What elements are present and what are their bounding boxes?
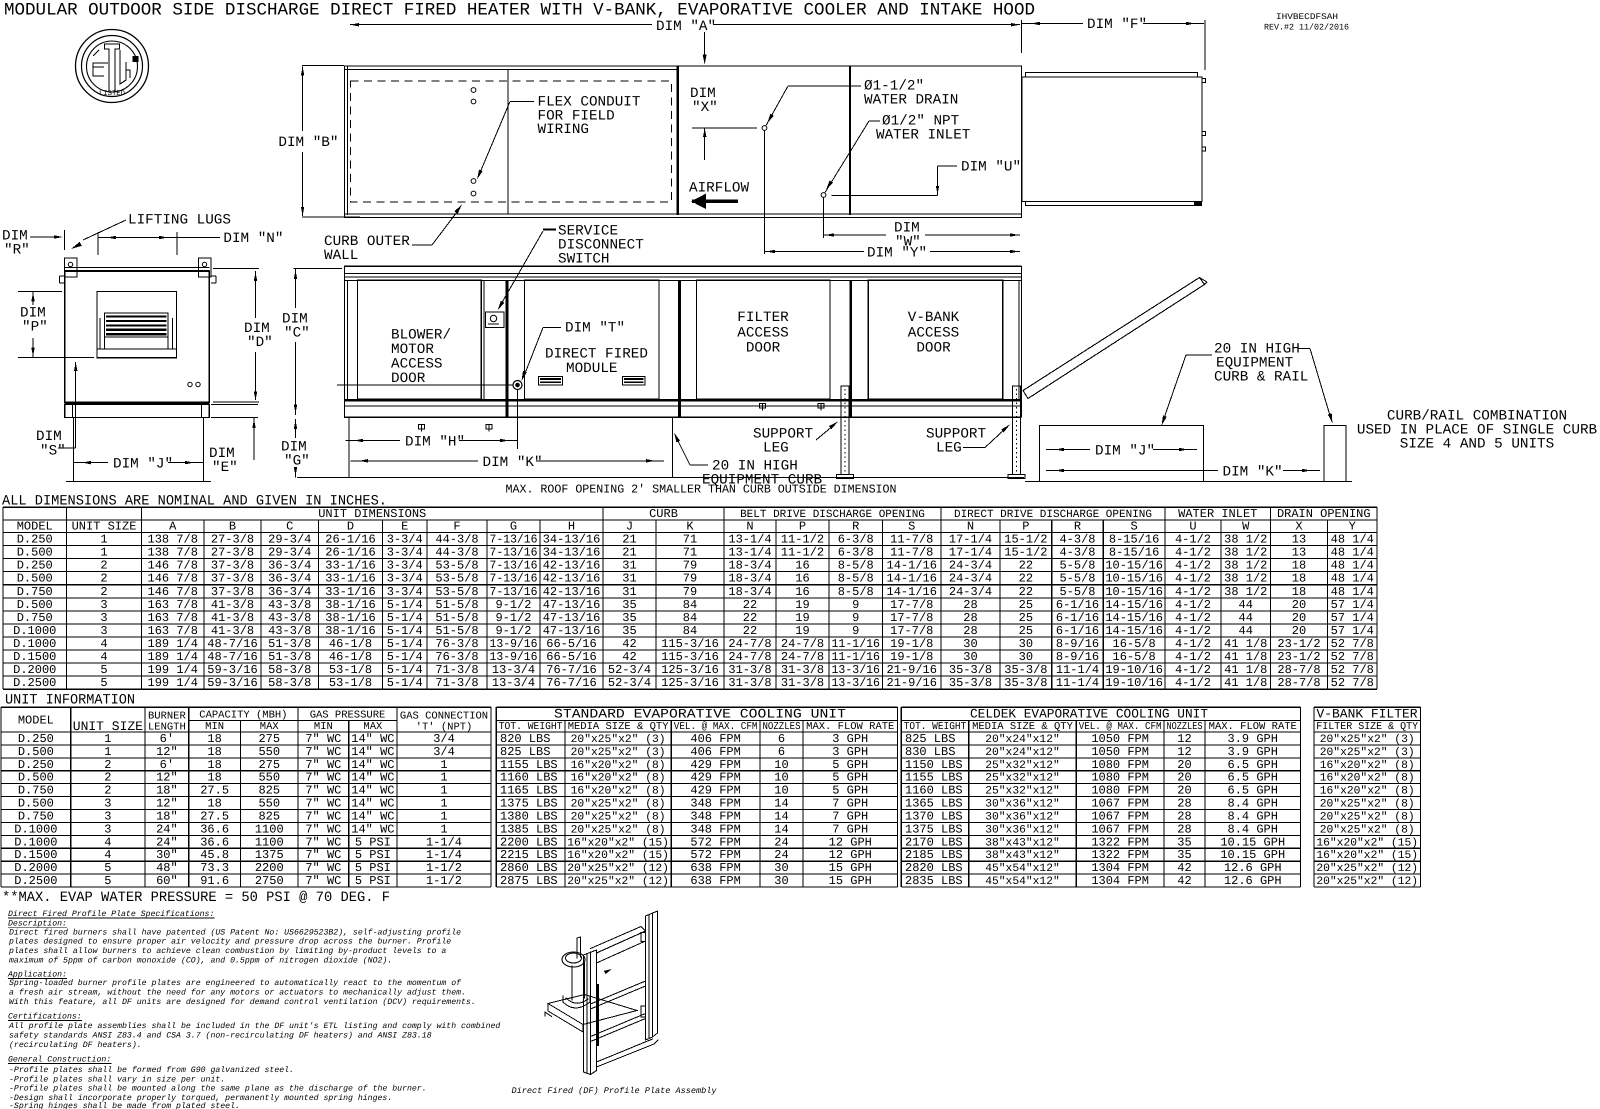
svg-text:1-1/2: 1-1/2 (426, 874, 462, 888)
svg-text:48 1/4: 48 1/4 (1331, 533, 1374, 547)
svg-text:71-3/8: 71-3/8 (435, 676, 478, 690)
svg-text:J: J (626, 519, 633, 533)
svg-text:**MAX. EVAP WATER PRESSURE = 5: **MAX. EVAP WATER PRESSURE = 50 PSI @ 70… (2, 890, 390, 906)
svg-text:7" WC: 7" WC (305, 809, 341, 823)
svg-text:20"x24"x12": 20"x24"x12" (985, 746, 1060, 759)
svg-text:4: 4 (100, 637, 107, 651)
svg-text:27.5: 27.5 (200, 784, 229, 798)
svg-text:57 1/4: 57 1/4 (1331, 611, 1374, 625)
svg-text:29-3/4: 29-3/4 (268, 546, 311, 560)
svg-text:53-1/8: 53-1/8 (329, 663, 372, 677)
svg-text:1: 1 (440, 771, 447, 785)
svg-text:WATER DRAIN: WATER DRAIN (864, 93, 958, 109)
svg-text:53-1/8: 53-1/8 (329, 676, 372, 690)
svg-text:16"x20"x2" (8): 16"x20"x2" (8) (571, 772, 666, 785)
svg-text:48 1/4: 48 1/4 (1331, 585, 1374, 599)
svg-text:MODEL: MODEL (18, 714, 54, 728)
svg-text:42-13/16: 42-13/16 (543, 585, 601, 599)
svg-text:WATER INLET: WATER INLET (876, 128, 971, 144)
svg-text:plates designed to ensure prop: plates designed to ensure proper air vel… (8, 938, 451, 947)
svg-text:66-5/16: 66-5/16 (546, 650, 596, 664)
svg-text:52 7/8: 52 7/8 (1331, 650, 1374, 664)
svg-text:D.1000: D.1000 (13, 624, 56, 638)
svg-text:4-1/2: 4-1/2 (1175, 663, 1211, 677)
svg-text:25: 25 (1019, 611, 1033, 625)
svg-text:27-3/8: 27-3/8 (211, 533, 254, 547)
svg-text:35: 35 (1177, 835, 1191, 849)
svg-text:MODEL: MODEL (17, 519, 53, 533)
svg-text:12 GPH: 12 GPH (829, 835, 872, 849)
svg-text:F: F (453, 519, 460, 533)
svg-text:9: 9 (852, 598, 859, 612)
svg-text:5-1/4: 5-1/4 (387, 598, 423, 612)
svg-text:7-13/16: 7-13/16 (490, 559, 538, 573)
svg-text:W: W (1242, 519, 1250, 533)
svg-text:MEDIA SIZE & QTY: MEDIA SIZE & QTY (568, 721, 670, 733)
svg-text:D.2000: D.2000 (14, 861, 57, 875)
svg-text:138 7/8: 138 7/8 (148, 533, 198, 547)
svg-text:10: 10 (774, 784, 788, 798)
svg-text:76-7/16: 76-7/16 (546, 676, 596, 690)
svg-text:10: 10 (774, 771, 788, 785)
svg-text:CURB & RAIL: CURB & RAIL (1214, 370, 1308, 386)
svg-text:E: E (401, 519, 408, 533)
svg-text:MODULAR OUTDOOR SIDE DISCHARGE: MODULAR OUTDOOR SIDE DISCHARGE DIRECT FI… (4, 2, 1035, 21)
svg-text:11-7/8: 11-7/8 (890, 533, 933, 547)
svg-text:47-13/16: 47-13/16 (543, 624, 601, 638)
svg-text:D.1500: D.1500 (14, 848, 57, 862)
svg-text:6': 6' (160, 758, 174, 772)
svg-text:26-1/16: 26-1/16 (325, 546, 375, 560)
svg-text:38"x43"x12": 38"x43"x12" (985, 849, 1060, 862)
svg-text:20"x25"x2" (3): 20"x25"x2" (3) (1320, 733, 1415, 746)
svg-text:1304 FPM: 1304 FPM (1091, 874, 1149, 888)
svg-text:D.500: D.500 (18, 797, 54, 811)
svg-text:5 PSI: 5 PSI (355, 848, 391, 862)
svg-text:6-1/16: 6-1/16 (1056, 611, 1099, 625)
svg-text:26-1/16: 26-1/16 (325, 533, 375, 547)
svg-text:71: 71 (683, 546, 697, 560)
svg-text:1155 LBS: 1155 LBS (500, 758, 558, 772)
svg-text:30"x36"x12": 30"x36"x12" (985, 798, 1060, 811)
svg-text:189 1/4: 189 1/4 (148, 637, 198, 651)
svg-text:4-3/8: 4-3/8 (1059, 546, 1095, 560)
svg-text:D.500: D.500 (17, 546, 53, 560)
svg-text:AIRFLOW: AIRFLOW (689, 181, 749, 197)
svg-text:24: 24 (774, 835, 788, 849)
svg-text:59-3/16: 59-3/16 (207, 663, 257, 677)
svg-text:31-3/8: 31-3/8 (781, 663, 824, 677)
svg-text:1: 1 (440, 784, 447, 798)
svg-text:48-7/16: 48-7/16 (207, 650, 257, 664)
svg-text:1-1/4: 1-1/4 (426, 848, 462, 862)
svg-text:17-7/8: 17-7/8 (890, 598, 933, 612)
svg-text:189 1/4: 189 1/4 (148, 650, 198, 664)
svg-text:2170 LBS: 2170 LBS (905, 835, 963, 849)
svg-text:429 FPM: 429 FPM (690, 758, 740, 772)
svg-text:3 GPH: 3 GPH (832, 732, 868, 746)
svg-text:(recirculating DF heaters).: (recirculating DF heaters). (9, 1041, 142, 1050)
svg-text:14: 14 (774, 797, 788, 811)
svg-text:IHVBECDFSAH: IHVBECDFSAH (1276, 12, 1338, 22)
svg-text:19: 19 (795, 611, 809, 625)
svg-text:9-1/2: 9-1/2 (495, 624, 531, 638)
svg-text:52 7/8: 52 7/8 (1331, 637, 1374, 651)
svg-text:27.5: 27.5 (200, 809, 229, 823)
svg-text:11-1/2: 11-1/2 (781, 533, 824, 547)
svg-text:37-3/8: 37-3/8 (211, 572, 254, 586)
svg-text:H: H (568, 519, 575, 533)
svg-text:V-BANK: V-BANK (908, 310, 960, 326)
svg-text:46-1/8: 46-1/8 (329, 650, 372, 664)
svg-text:48 1/4: 48 1/4 (1331, 559, 1374, 573)
svg-text:A: A (169, 519, 177, 533)
svg-text:7 GPH: 7 GPH (832, 797, 868, 811)
svg-text:D.1000: D.1000 (14, 835, 57, 849)
svg-text:44-3/8: 44-3/8 (435, 533, 478, 547)
svg-text:7" WC: 7" WC (305, 732, 341, 746)
svg-text:18: 18 (1292, 585, 1306, 599)
svg-text:20"x25"x2" (8): 20"x25"x2" (8) (1320, 810, 1415, 823)
svg-text:DIM "H": DIM "H" (405, 435, 465, 451)
svg-text:"X": "X" (692, 100, 718, 116)
svg-text:"G": "G" (284, 454, 310, 470)
svg-text:D.250: D.250 (18, 758, 54, 772)
svg-text:5: 5 (100, 663, 107, 677)
svg-text:45"x54"x12": 45"x54"x12" (985, 862, 1060, 875)
svg-text:2200 LBS: 2200 LBS (500, 835, 558, 849)
svg-text:7" WC: 7" WC (305, 848, 341, 862)
svg-text:71: 71 (683, 533, 697, 547)
svg-text:20"x25"x2" (8): 20"x25"x2" (8) (1320, 823, 1415, 836)
svg-text:13: 13 (1292, 546, 1306, 560)
svg-text:10-15/16: 10-15/16 (1105, 559, 1163, 573)
svg-text:19-1/8: 19-1/8 (890, 650, 933, 664)
svg-text:16-5/8: 16-5/8 (1113, 637, 1156, 651)
svg-text:1080 FPM: 1080 FPM (1091, 784, 1149, 798)
svg-text:5 GPH: 5 GPH (832, 771, 868, 785)
svg-text:D.250: D.250 (17, 533, 53, 547)
svg-text:5-1/4: 5-1/4 (387, 624, 423, 638)
svg-text:UNIT SIZE: UNIT SIZE (72, 519, 137, 533)
svg-text:48-7/16: 48-7/16 (207, 637, 257, 651)
svg-text:22: 22 (1019, 572, 1033, 586)
svg-text:146 7/8: 146 7/8 (148, 559, 198, 573)
svg-text:58-3/8: 58-3/8 (268, 663, 311, 677)
svg-text:348 FPM: 348 FPM (690, 797, 740, 811)
svg-text:5-1/4: 5-1/4 (387, 663, 423, 677)
svg-text:20"x25"x2" (12): 20"x25"x2" (12) (567, 862, 669, 875)
svg-text:28: 28 (1177, 822, 1191, 836)
svg-text:5-1/4: 5-1/4 (387, 611, 423, 625)
svg-text:38"x43"x12": 38"x43"x12" (985, 836, 1060, 849)
svg-text:45.8: 45.8 (200, 848, 229, 862)
svg-text:19-1/8: 19-1/8 (890, 637, 933, 651)
svg-text:3-3/4: 3-3/4 (387, 533, 423, 547)
svg-text:16: 16 (795, 559, 809, 573)
svg-text:18: 18 (207, 732, 221, 746)
svg-text:2835 LBS: 2835 LBS (905, 874, 963, 888)
svg-text:138 7/8: 138 7/8 (148, 546, 198, 560)
svg-text:30": 30" (156, 848, 178, 862)
svg-text:638 FPM: 638 FPM (690, 861, 740, 875)
svg-text:44: 44 (1239, 624, 1253, 638)
svg-text:V-BANK FILTER: V-BANK FILTER (1317, 706, 1418, 721)
svg-text:406 FPM: 406 FPM (690, 732, 740, 746)
svg-text:47-13/16: 47-13/16 (543, 598, 601, 612)
svg-text:DIM "F": DIM "F" (1087, 17, 1147, 33)
svg-text:17-1/4: 17-1/4 (949, 546, 992, 560)
svg-text:16"x20"x2" (15): 16"x20"x2" (15) (567, 849, 669, 862)
svg-text:7 GPH: 7 GPH (832, 822, 868, 836)
svg-text:13-3/16: 13-3/16 (832, 663, 881, 677)
svg-text:820 LBS: 820 LBS (500, 732, 550, 746)
svg-text:12": 12" (156, 745, 178, 759)
svg-text:20"x25"x2" (12): 20"x25"x2" (12) (567, 875, 669, 888)
svg-text:14" WC: 14" WC (351, 745, 394, 759)
svg-text:71-3/8: 71-3/8 (435, 663, 478, 677)
svg-text:115-3/16: 115-3/16 (661, 637, 719, 651)
svg-text:N: N (967, 519, 974, 533)
svg-text:17-7/8: 17-7/8 (890, 624, 933, 638)
svg-text:406 FPM: 406 FPM (690, 745, 740, 759)
svg-text:13-3/4: 13-3/4 (492, 663, 535, 677)
svg-text:4-1/2: 4-1/2 (1175, 676, 1211, 690)
svg-text:550: 550 (258, 771, 280, 785)
svg-text:42-13/16: 42-13/16 (543, 572, 601, 586)
svg-text:6.5 GPH: 6.5 GPH (1228, 771, 1278, 785)
svg-text:1: 1 (104, 745, 111, 759)
svg-text:429 FPM: 429 FPM (690, 784, 740, 798)
svg-text:DIM "J": DIM "J" (113, 457, 173, 473)
svg-text:7" WC: 7" WC (305, 874, 341, 888)
svg-text:36.6: 36.6 (200, 835, 229, 849)
svg-text:163 7/8: 163 7/8 (148, 624, 198, 638)
svg-text:31-3/8: 31-3/8 (728, 663, 771, 677)
svg-text:10-15/16: 10-15/16 (1105, 585, 1163, 599)
svg-text:31: 31 (622, 585, 636, 599)
svg-text:1165 LBS: 1165 LBS (500, 784, 558, 798)
svg-text:37-3/8: 37-3/8 (211, 559, 254, 573)
svg-text:-Spring hinges shall be made f: -Spring hinges shall be made from plated… (9, 1102, 240, 1109)
svg-text:18: 18 (207, 797, 221, 811)
svg-text:35: 35 (1177, 848, 1191, 862)
svg-text:N: N (746, 519, 753, 533)
svg-text:"P": "P" (22, 320, 48, 336)
svg-text:76-3/8: 76-3/8 (435, 650, 478, 664)
svg-text:18": 18" (156, 784, 178, 798)
svg-text:30: 30 (963, 650, 977, 664)
svg-text:18: 18 (207, 745, 221, 759)
svg-text:15-1/2: 15-1/2 (1004, 533, 1047, 547)
svg-text:13: 13 (1292, 533, 1306, 547)
svg-text:17-1/4: 17-1/4 (949, 533, 992, 547)
svg-text:a fresh air stream, without th: a fresh air stream, without the need for… (9, 988, 466, 997)
svg-text:DIM "K": DIM "K" (1223, 465, 1283, 481)
svg-text:Direct fired burners shall hav: Direct fired burners shall have patented… (9, 928, 461, 937)
svg-text:36-3/4: 36-3/4 (268, 572, 311, 586)
svg-text:14" WC: 14" WC (351, 732, 394, 746)
svg-text:14-15/16: 14-15/16 (1105, 624, 1163, 638)
svg-text:24": 24" (156, 835, 178, 849)
svg-text:5 PSI: 5 PSI (355, 835, 391, 849)
svg-text:13-9/16: 13-9/16 (490, 637, 538, 651)
svg-text:638 FPM: 638 FPM (690, 874, 740, 888)
svg-text:28: 28 (1177, 797, 1191, 811)
svg-text:20"x25"x2" (8): 20"x25"x2" (8) (571, 823, 666, 836)
svg-text:4-1/2: 4-1/2 (1175, 637, 1211, 651)
svg-text:safety standards ANSI Z83.4 an: safety standards ANSI Z83.4 and CSA 3.7 … (9, 1032, 432, 1041)
svg-text:30: 30 (1019, 637, 1033, 651)
svg-text:30"x36"x12": 30"x36"x12" (985, 823, 1060, 836)
svg-text:12.6 GPH: 12.6 GPH (1224, 861, 1282, 875)
svg-text:30: 30 (1019, 650, 1033, 664)
svg-text:2: 2 (100, 572, 107, 586)
svg-text:13-3/4: 13-3/4 (492, 676, 535, 690)
svg-text:D.1000: D.1000 (14, 822, 57, 836)
svg-text:163 7/8: 163 7/8 (148, 611, 198, 625)
svg-text:P: P (799, 519, 806, 533)
svg-text:48": 48" (156, 861, 178, 875)
svg-text:P: P (1022, 519, 1029, 533)
svg-text:53-5/8: 53-5/8 (435, 559, 478, 573)
svg-text:38-1/16: 38-1/16 (325, 611, 375, 625)
svg-text:51-3/8: 51-3/8 (268, 650, 311, 664)
svg-text:37-3/8: 37-3/8 (211, 585, 254, 599)
svg-text:S: S (908, 519, 915, 533)
svg-text:D.500: D.500 (17, 598, 53, 612)
svg-text:47-13/16: 47-13/16 (543, 611, 601, 625)
svg-text:1304 FPM: 1304 FPM (1091, 861, 1149, 875)
svg-text:42: 42 (1177, 874, 1191, 888)
svg-text:1080 FPM: 1080 FPM (1091, 771, 1149, 785)
svg-text:28-7/8: 28-7/8 (1277, 663, 1320, 677)
svg-text:42-13/16: 42-13/16 (543, 559, 601, 573)
svg-text:"E": "E" (212, 460, 238, 476)
svg-text:20"x25"x2" (8): 20"x25"x2" (8) (1320, 798, 1415, 811)
svg-text:UNIT INFORMATION: UNIT INFORMATION (5, 693, 135, 709)
svg-text:4-1/2: 4-1/2 (1175, 650, 1211, 664)
svg-text:38 1/2: 38 1/2 (1224, 585, 1267, 599)
svg-text:16-5/8: 16-5/8 (1113, 650, 1156, 664)
svg-text:DIM "N": DIM "N" (223, 231, 283, 247)
svg-text:7" WC: 7" WC (305, 797, 341, 811)
svg-text:R: R (852, 519, 859, 533)
svg-text:24": 24" (156, 822, 178, 836)
svg-text:1050 FPM: 1050 FPM (1091, 732, 1149, 746)
svg-text:D.250: D.250 (18, 732, 54, 746)
svg-text:4-1/2: 4-1/2 (1175, 546, 1211, 560)
svg-text:5 GPH: 5 GPH (832, 758, 868, 772)
svg-text:51-5/8: 51-5/8 (435, 598, 478, 612)
svg-text:D.500: D.500 (17, 572, 53, 586)
svg-text:30: 30 (774, 861, 788, 875)
svg-text:275: 275 (258, 758, 280, 772)
svg-text:2215 LBS: 2215 LBS (500, 848, 558, 862)
svg-text:4: 4 (104, 848, 111, 862)
svg-text:9: 9 (852, 624, 859, 638)
svg-text:7-13/16: 7-13/16 (490, 546, 538, 560)
svg-text:D.750: D.750 (17, 611, 53, 625)
svg-text:4-1/2: 4-1/2 (1175, 572, 1211, 586)
svg-text:8-5/8: 8-5/8 (838, 559, 874, 573)
svg-text:16: 16 (795, 585, 809, 599)
svg-text:84: 84 (683, 598, 697, 612)
svg-text:21: 21 (622, 533, 636, 547)
svg-text:3-3/4: 3-3/4 (387, 572, 423, 586)
svg-text:22: 22 (1019, 585, 1033, 599)
svg-text:3: 3 (100, 611, 107, 625)
svg-text:28-7/8: 28-7/8 (1277, 676, 1320, 690)
svg-text:D.750: D.750 (18, 809, 54, 823)
svg-text:K: K (686, 519, 694, 533)
svg-text:6-3/8: 6-3/8 (838, 546, 874, 560)
svg-text:20"x25"x2" (12): 20"x25"x2" (12) (1316, 862, 1418, 875)
svg-text:830 LBS: 830 LBS (905, 745, 955, 759)
svg-text:59-3/16: 59-3/16 (207, 676, 257, 690)
svg-text:1: 1 (100, 546, 107, 560)
svg-text:8-9/16: 8-9/16 (1056, 637, 1099, 651)
svg-text:14-1/16: 14-1/16 (887, 585, 937, 599)
svg-text:20"x25"x2" (8): 20"x25"x2" (8) (571, 798, 666, 811)
svg-text:18: 18 (207, 771, 221, 785)
svg-text:1: 1 (100, 533, 107, 547)
svg-text:38 1/2: 38 1/2 (1224, 572, 1267, 586)
svg-text:38 1/2: 38 1/2 (1224, 546, 1267, 560)
svg-text:14: 14 (774, 822, 788, 836)
svg-text:20: 20 (1177, 784, 1191, 798)
svg-text:4-3/8: 4-3/8 (1059, 533, 1095, 547)
svg-text:2750: 2750 (255, 874, 284, 888)
svg-text:10.15 GPH: 10.15 GPH (1220, 835, 1285, 849)
svg-text:1: 1 (104, 732, 111, 746)
svg-text:23-1/2: 23-1/2 (1277, 637, 1320, 651)
svg-text:7-13/16: 7-13/16 (490, 585, 538, 599)
svg-text:X: X (1295, 519, 1302, 533)
svg-text:24-3/4: 24-3/4 (949, 572, 992, 586)
svg-text:8.4 GPH: 8.4 GPH (1228, 822, 1278, 836)
svg-text:14-1/16: 14-1/16 (887, 559, 937, 573)
svg-text:48 1/4: 48 1/4 (1331, 546, 1374, 560)
svg-text:6: 6 (778, 745, 785, 759)
svg-text:57 1/4: 57 1/4 (1331, 598, 1374, 612)
svg-text:1: 1 (440, 758, 447, 772)
svg-text:11-7/8: 11-7/8 (890, 546, 933, 560)
svg-text:76-3/8: 76-3/8 (435, 637, 478, 651)
svg-text:20: 20 (1177, 771, 1191, 785)
svg-text:"S": "S" (40, 444, 66, 460)
svg-text:"D": "D" (247, 335, 273, 351)
svg-text:28: 28 (963, 598, 977, 612)
svg-text:41 1/8: 41 1/8 (1224, 637, 1267, 651)
svg-text:S: S (1131, 519, 1138, 533)
svg-text:33-1/16: 33-1/16 (325, 559, 375, 573)
svg-text:24-3/4: 24-3/4 (949, 585, 992, 599)
svg-text:2: 2 (100, 585, 107, 599)
svg-text:41-3/8: 41-3/8 (211, 598, 254, 612)
svg-text:30"x36"x12": 30"x36"x12" (985, 810, 1060, 823)
svg-text:572 FPM: 572 FPM (690, 848, 740, 862)
svg-text:12": 12" (156, 771, 178, 785)
svg-text:plates shall allow burners to: plates shall allow burners to achieve cl… (8, 947, 446, 956)
svg-text:91.6: 91.6 (200, 874, 229, 888)
svg-text:MAX. ROOF OPENING 2' SMALLER T: MAX. ROOF OPENING 2' SMALLER THAN CURB O… (506, 483, 897, 497)
svg-text:1322 FPM: 1322 FPM (1091, 848, 1149, 862)
svg-text:DIM "U": DIM "U" (961, 160, 1021, 176)
svg-text:-Profile plates shall be mount: -Profile plates shall be mounted along t… (9, 1085, 427, 1094)
svg-text:52 7/8: 52 7/8 (1331, 676, 1374, 690)
svg-text:6-3/8: 6-3/8 (838, 533, 874, 547)
